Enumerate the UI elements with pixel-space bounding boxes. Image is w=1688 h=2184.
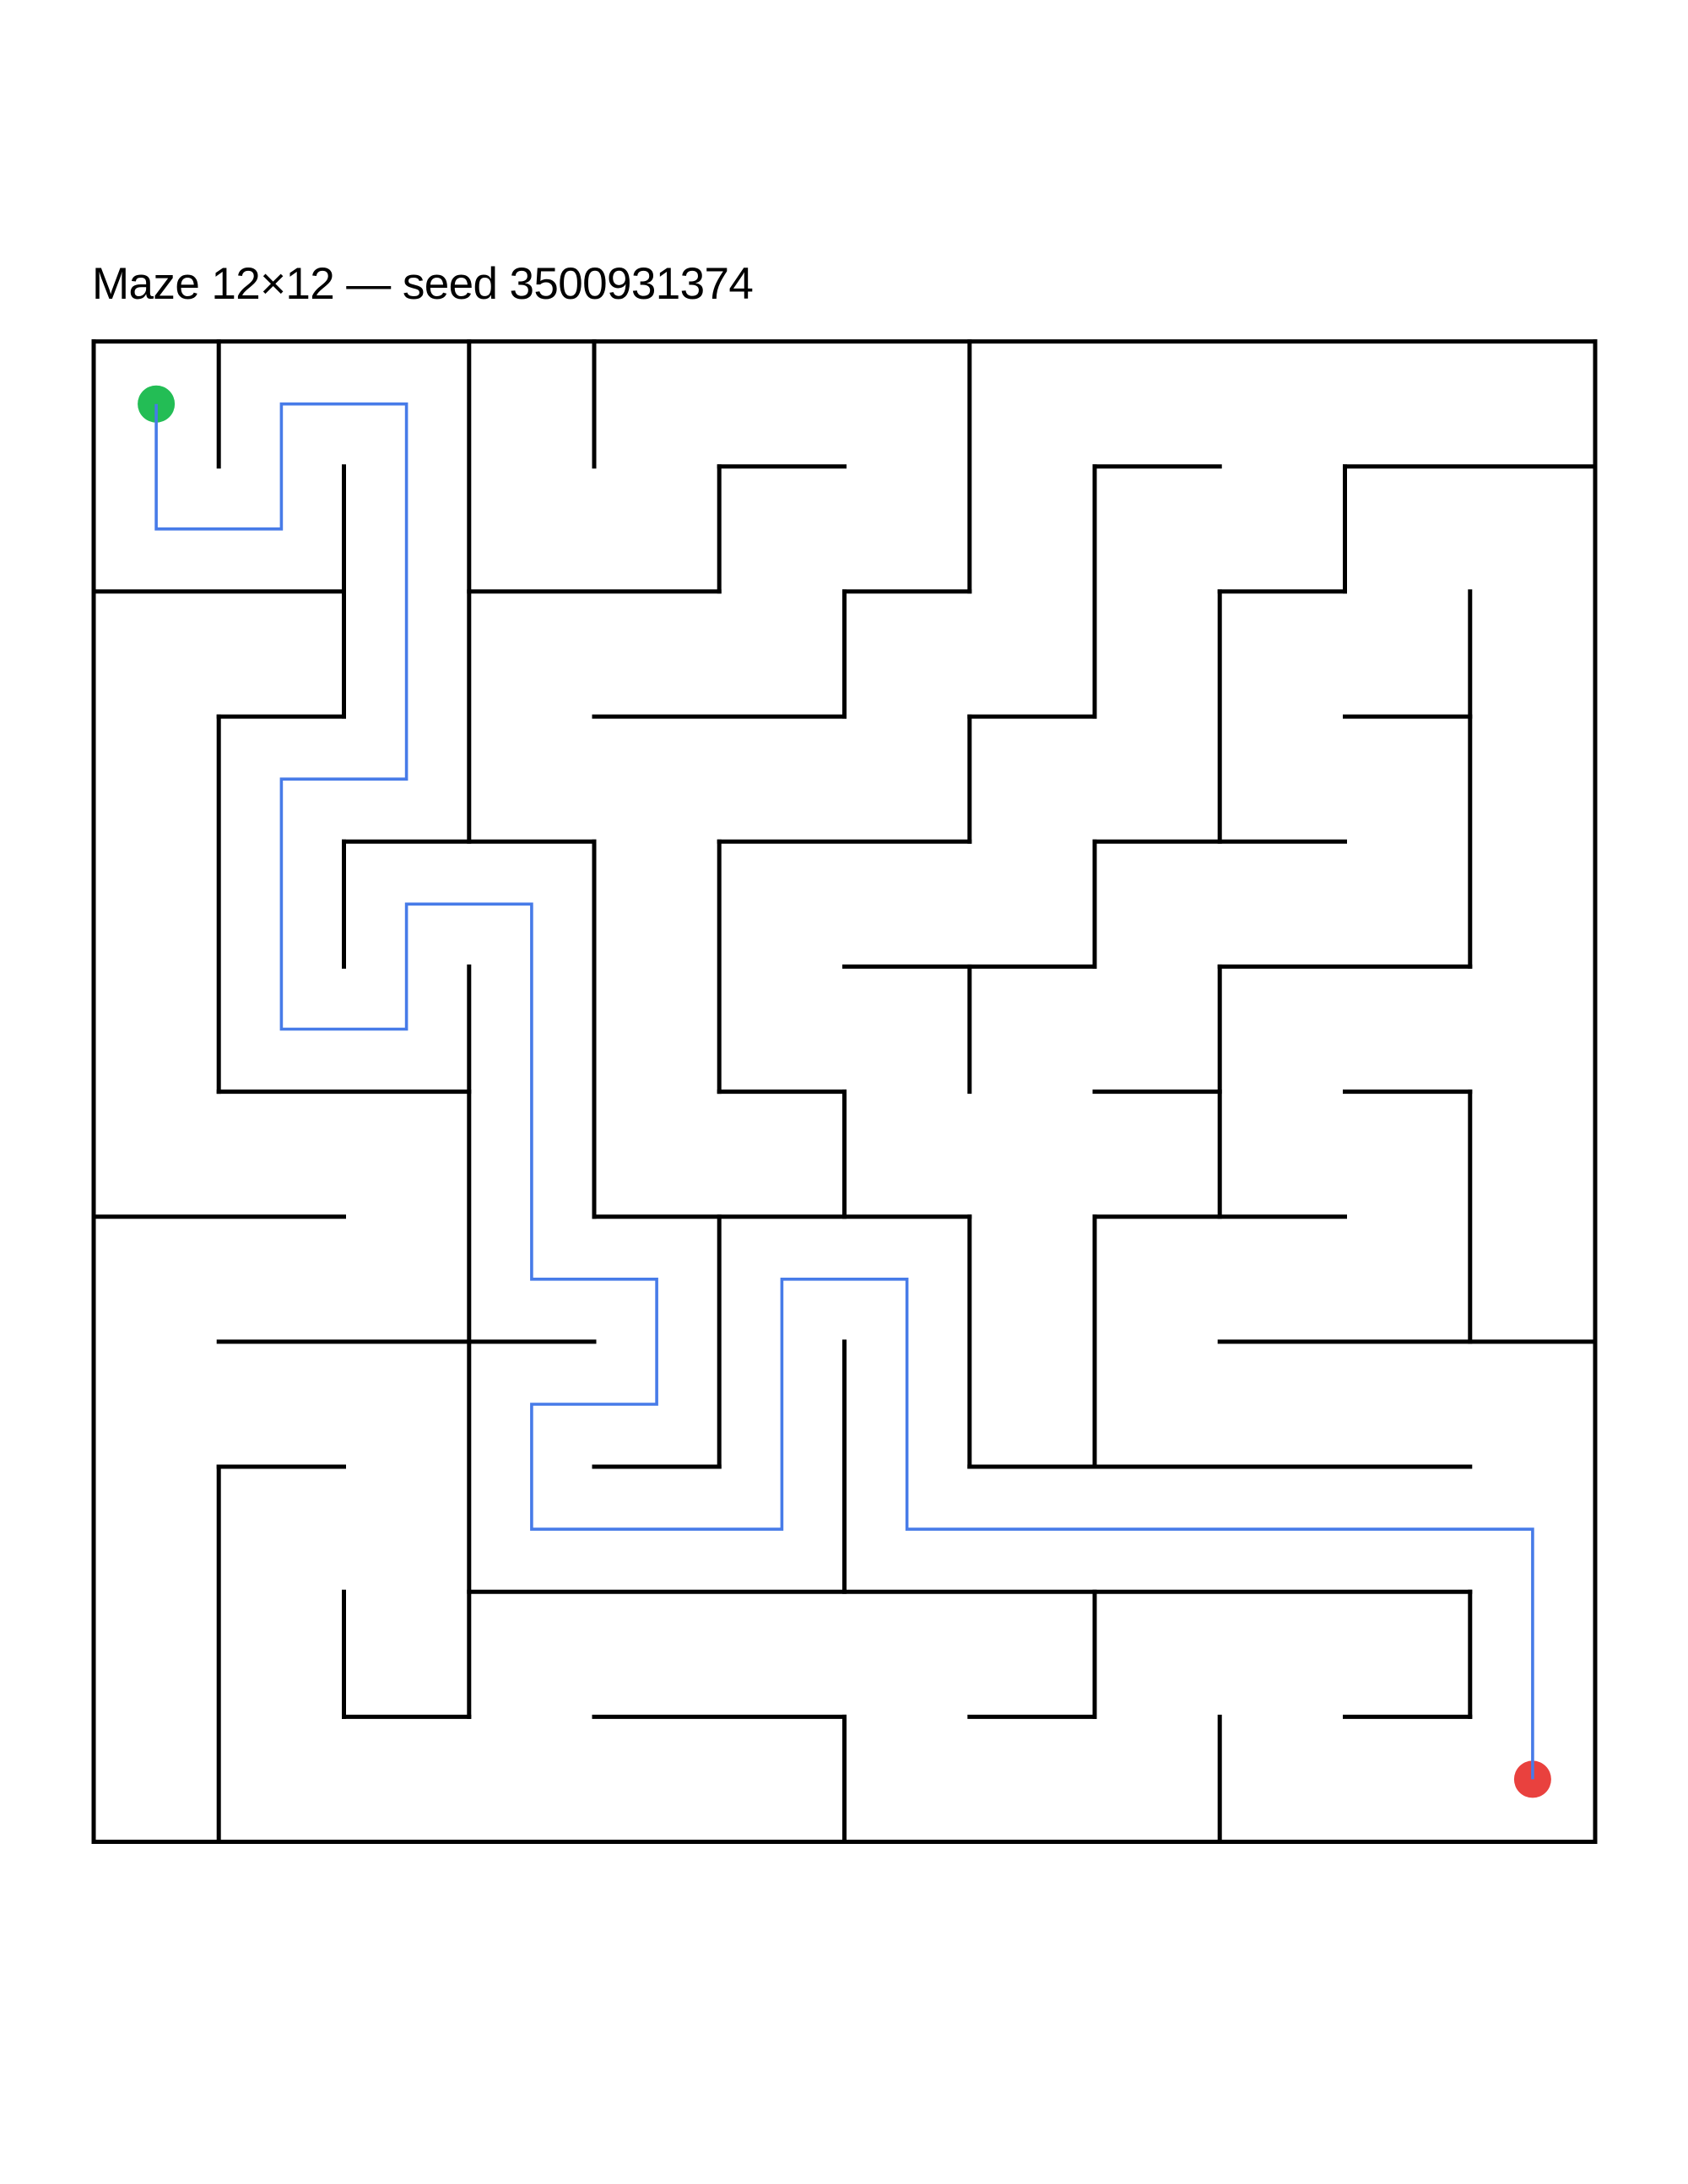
svg-text:Maze 12×12 — seed 3500931374: Maze 12×12 — seed 3500931374: [92, 259, 753, 309]
